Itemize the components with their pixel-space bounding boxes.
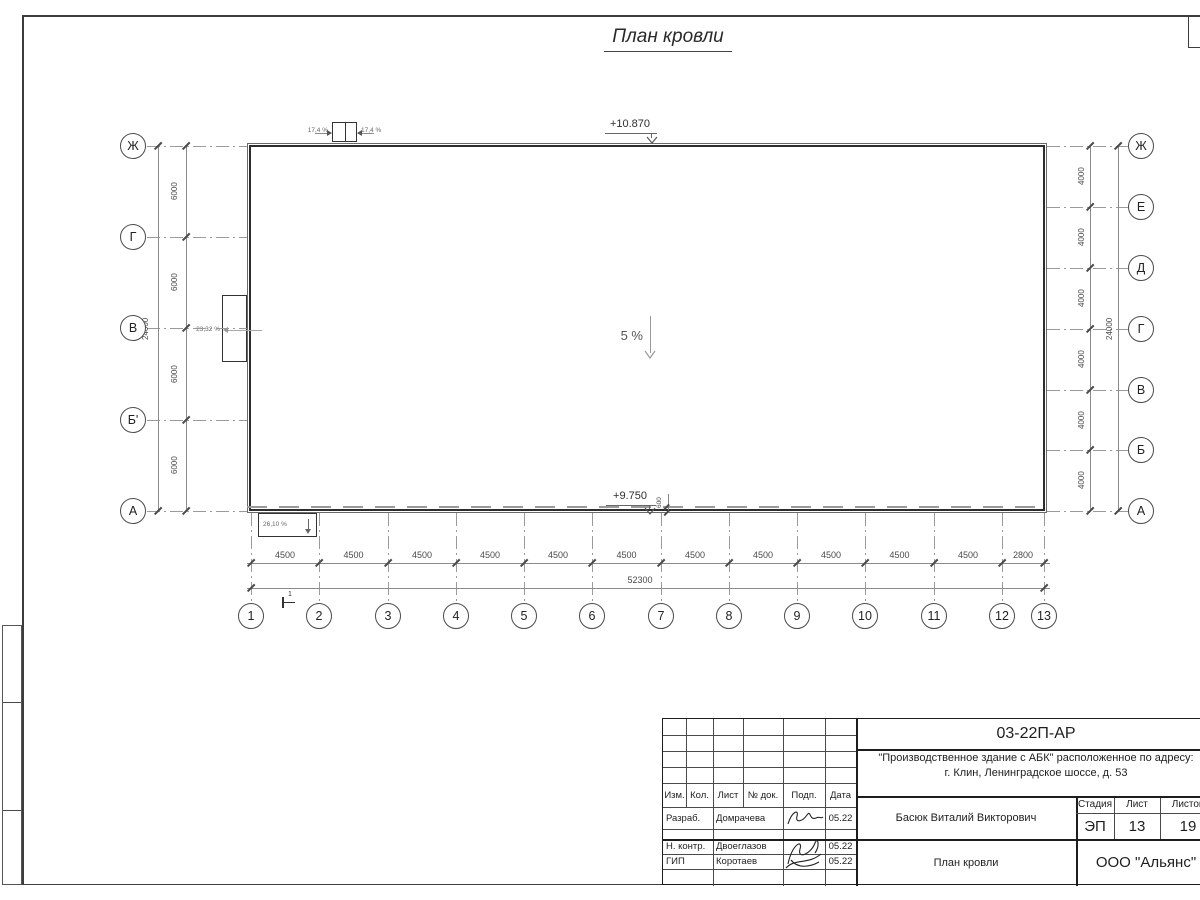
elevation-mark: +10.870: [595, 118, 665, 130]
column-circle: 8: [716, 603, 742, 629]
dim-label: 4000: [1077, 329, 1086, 390]
tb-date: 05.22: [825, 839, 856, 854]
slope-arrowhead: [357, 130, 362, 136]
axis-circle: Ж: [120, 133, 146, 159]
title-block-line: [663, 735, 856, 736]
dim-label: 6000: [170, 146, 179, 237]
dim-label: 4500: [934, 550, 1002, 560]
dim-label: 4500: [865, 550, 934, 560]
signature-razrab: [785, 808, 825, 830]
dim-label: 4500: [319, 550, 388, 560]
axis-line: [147, 146, 247, 147]
tb-date: 05.22: [825, 854, 856, 869]
tb-drawing-name: План кровли: [856, 839, 1076, 886]
column-circle: 9: [784, 603, 810, 629]
axis-line: [147, 511, 247, 512]
column-circle: 4: [443, 603, 469, 629]
dim-label: 6000: [170, 420, 179, 511]
dim-label: 4000: [1077, 146, 1086, 207]
column-circle: 5: [511, 603, 537, 629]
axis-circle: Е: [1128, 194, 1154, 220]
tb-sheet-value: 13: [1114, 813, 1160, 839]
roof-hatch: [332, 122, 357, 142]
tb-name: Двоеглазов: [713, 839, 783, 854]
tb-sheet-label: Лист: [1114, 796, 1160, 813]
dim-label: 4500: [524, 550, 592, 560]
tb-date: 05.22: [825, 807, 856, 829]
tb-header-izm: Изм.: [663, 783, 686, 807]
title-block: Изм. Кол. Лист № док. Подп. Дата Разраб.…: [662, 718, 1200, 885]
tb-stage-label: Стадия: [1076, 796, 1114, 813]
title-block-line: [663, 869, 856, 870]
slope-arrow-line: [650, 316, 651, 353]
frame-column-cell-divider: [3, 810, 21, 811]
tb-doc-number: 03-22П-АР: [856, 719, 1200, 749]
dim-label: 4500: [456, 550, 524, 560]
tb-project-line1: "Производственное здание с АБК" располож…: [858, 750, 1200, 766]
tb-header-list: Лист: [713, 783, 743, 807]
section-mark-arrow: [284, 602, 295, 603]
axis-circle: Б: [1128, 437, 1154, 463]
section-mark-number: 1: [288, 591, 292, 598]
dim-label: 600: [656, 493, 663, 513]
tb-name: Домрачева: [713, 807, 783, 829]
tb-role: Разраб.: [663, 807, 713, 829]
axis-circle: В: [120, 315, 146, 341]
roof-hatch-ridge: [345, 123, 346, 141]
slope-arrowhead: [327, 130, 332, 136]
dim-label: 52300: [600, 575, 680, 585]
tb-sheets-value: 19: [1160, 813, 1200, 839]
tb-sheets-label: Листов: [1160, 796, 1200, 813]
frame-top-line: [22, 15, 1200, 17]
slope-label: 5 %: [603, 328, 643, 343]
axis-line: [147, 420, 247, 421]
dim-label: 4500: [251, 550, 319, 560]
frame-left-line: [22, 15, 24, 885]
tb-role: Н. контр.: [663, 839, 713, 854]
column-circle: 7: [648, 603, 674, 629]
frame-corner-box: [1188, 15, 1200, 48]
elevation-mark: +9.750: [595, 490, 665, 502]
column-circle: 10: [852, 603, 878, 629]
page-title: План кровли: [518, 26, 818, 52]
column-circle: 2: [306, 603, 332, 629]
slope-arrowhead: [644, 350, 656, 359]
title-block-line: [663, 767, 856, 768]
column-circle: 13: [1031, 603, 1057, 629]
tb-header-podp: Подп.: [783, 783, 825, 807]
building-parapet-line: [249, 145, 1045, 511]
column-circle: 6: [579, 603, 605, 629]
dim-label: 4500: [797, 550, 865, 560]
elevation-underline: [605, 133, 657, 134]
dim-label: 4000: [1077, 207, 1086, 268]
dim-label: 4500: [661, 550, 729, 560]
dim-label: 4000: [1077, 450, 1086, 511]
axis-circle: Б': [120, 407, 146, 433]
tb-project-line2: г. Клин, Ленинградское шоссе, д. 53: [856, 765, 1200, 781]
dim-label: 4500: [388, 550, 456, 560]
slope-arrow-line: [228, 330, 262, 331]
axis-line: [147, 237, 247, 238]
dim-line: [1118, 146, 1119, 511]
elevation-arrow: [644, 507, 656, 515]
axis-circle: Ж: [1128, 133, 1154, 159]
axis-circle: А: [120, 498, 146, 524]
dim-label: 4000: [1077, 268, 1086, 329]
tb-stage-value: ЭП: [1076, 813, 1114, 839]
dim-line: [247, 563, 1050, 564]
axis-line: [147, 328, 247, 329]
tb-header-kol: Кол.: [686, 783, 713, 807]
tb-header-data: Дата: [825, 783, 856, 807]
frame-column-strip: [2, 625, 22, 885]
dim-label: 4500: [592, 550, 661, 560]
dim-label: 4500: [729, 550, 797, 560]
elevation-arrow: [646, 136, 658, 144]
dim-line: [247, 588, 1050, 589]
tb-name: Коротаев: [713, 854, 783, 869]
slope-label: 26,10 %: [263, 521, 287, 528]
column-circle: 3: [375, 603, 401, 629]
column-circle: 12: [989, 603, 1015, 629]
axis-circle: А: [1128, 498, 1154, 524]
building-outline: [247, 143, 1047, 513]
axis-circle: Д: [1128, 255, 1154, 281]
dim-label: 4000: [1077, 390, 1086, 450]
column-circle: 1: [238, 603, 264, 629]
dim-label: 24000: [1105, 146, 1114, 511]
dim-label: 6000: [170, 237, 179, 328]
dim-label: 2800: [1002, 550, 1044, 560]
tb-role: ГИП: [663, 854, 713, 869]
frame-column-cell-divider: [3, 702, 21, 703]
dim-label: 6000: [170, 328, 179, 420]
title-block-line: [663, 829, 856, 830]
axis-circle: В: [1128, 377, 1154, 403]
title-block-line: [663, 751, 856, 752]
tb-chief-name: Басюк Виталий Викторович: [856, 796, 1076, 839]
drawing-sheet: { "page": { "title": "План кровли" }, "g…: [0, 0, 1200, 900]
dim-line: [158, 146, 159, 511]
column-circle: 11: [921, 603, 947, 629]
tb-company: ООО "Альянс": [1076, 839, 1200, 886]
slope-arrowhead: [305, 529, 311, 534]
axis-circle: Г: [1128, 316, 1154, 342]
axis-circle: Г: [120, 224, 146, 250]
signature-gip: [782, 836, 825, 872]
tb-header-doc: № док.: [743, 783, 783, 807]
